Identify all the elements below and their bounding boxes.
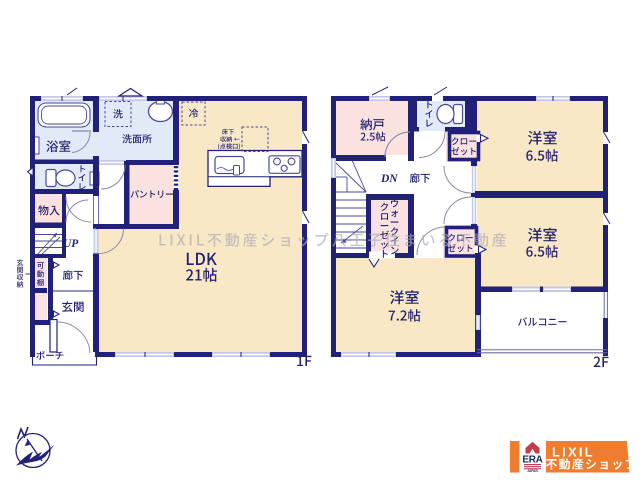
- svg-text:UP: UP: [63, 238, 79, 250]
- svg-text:ERA: ERA: [522, 455, 542, 466]
- svg-text:DN: DN: [380, 173, 398, 185]
- svg-text:LIXIL: LIXIL: [552, 445, 595, 460]
- svg-text:JAPAN: JAPAN: [527, 469, 538, 473]
